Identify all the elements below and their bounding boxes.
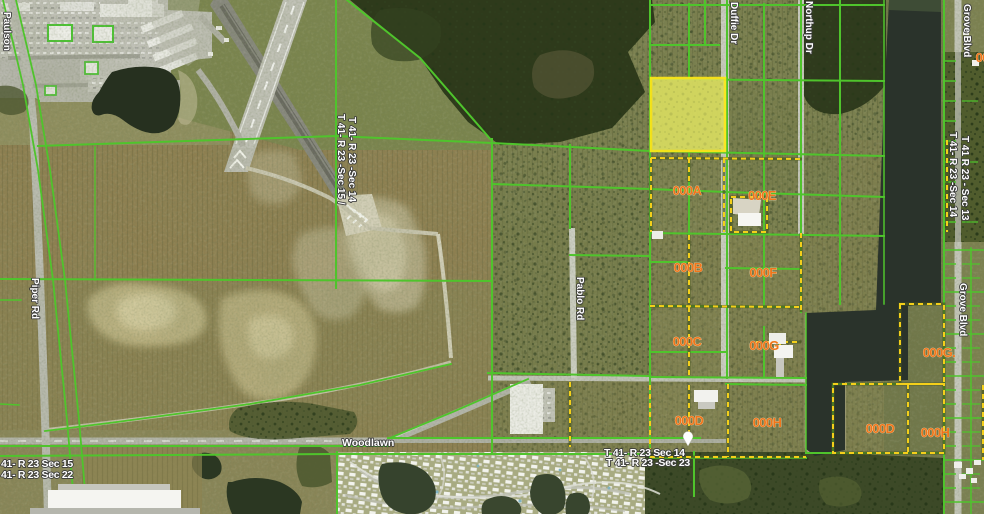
- svg-text:000E: 000E: [748, 188, 777, 203]
- svg-text:T 41- R 23 -Sec 14: T 41- R 23 -Sec 14: [346, 117, 357, 202]
- svg-text:T 41- R 23 -Sec 23: T 41- R 23 -Sec 23: [606, 457, 690, 469]
- svg-text:000G.: 000G.: [923, 345, 955, 360]
- svg-text:T 41 R 23 - Sec 13: T 41 R 23 - Sec 13: [959, 136, 970, 221]
- svg-text:41- R 23 Sec 22: 41- R 23 Sec 22: [1, 469, 73, 481]
- svg-text:000A: 000A: [673, 183, 703, 198]
- svg-text:Grove Blvd: Grove Blvd: [957, 283, 968, 336]
- svg-text:000C: 000C: [673, 334, 703, 349]
- svg-text:Woodlawn: Woodlawn: [342, 437, 394, 449]
- svg-text:000D: 000D: [866, 421, 895, 436]
- svg-text:T 41- R 23 -Sec 14: T 41- R 23 -Sec 14: [947, 132, 958, 217]
- svg-text:000D: 000D: [675, 413, 704, 428]
- svg-text:000F: 000F: [749, 265, 777, 280]
- svg-text:Grove Blvd: Grove Blvd: [961, 4, 972, 57]
- svg-text:Duffie Dr: Duffie Dr: [728, 2, 739, 44]
- svg-text:Pablo Rd: Pablo Rd: [574, 277, 585, 320]
- svg-text:Piper Rd: Piper Rd: [29, 278, 40, 319]
- svg-text:000H: 000H: [921, 425, 950, 440]
- svg-text:T 41- R 23 -Sec 15 /: T 41- R 23 -Sec 15 /: [335, 114, 346, 205]
- svg-text:000D: 000D: [976, 50, 984, 65]
- svg-text:000G: 000G: [749, 338, 779, 353]
- svg-text:000H: 000H: [753, 415, 782, 430]
- svg-text:Paulson: Paulson: [1, 12, 12, 51]
- svg-text:Northup Dr: Northup Dr: [803, 1, 814, 54]
- svg-text:000B: 000B: [674, 260, 703, 275]
